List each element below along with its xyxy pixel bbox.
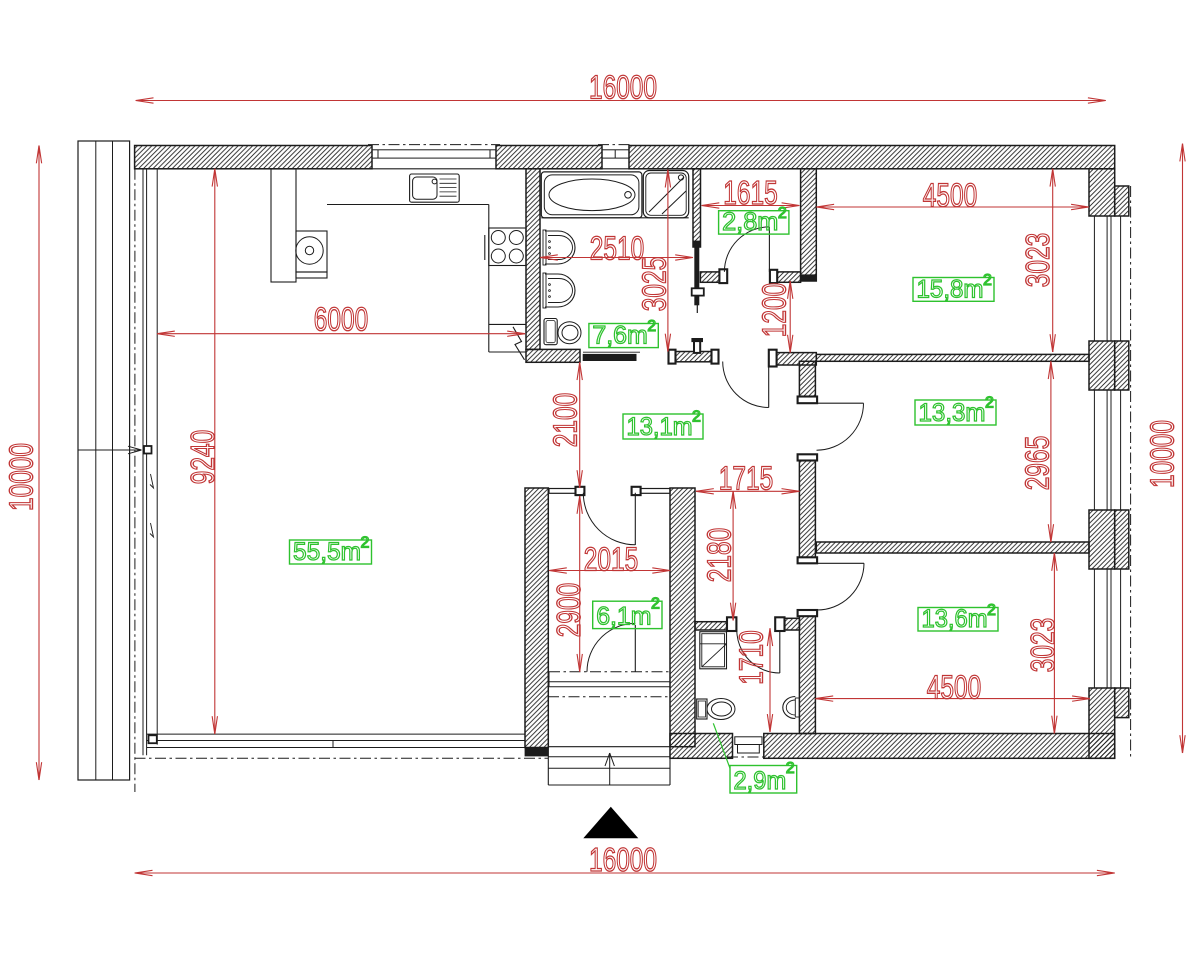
svg-text:16000: 16000 xyxy=(589,69,657,106)
svg-text:2180: 2180 xyxy=(701,528,738,582)
svg-text:55,5m: 55,5m xyxy=(293,538,361,566)
svg-text:2: 2 xyxy=(361,535,370,552)
svg-text:13,6m: 13,6m xyxy=(922,605,988,633)
svg-text:4500: 4500 xyxy=(923,177,977,214)
svg-text:6,1m: 6,1m xyxy=(596,603,651,631)
svg-text:2965: 2965 xyxy=(1019,436,1056,490)
svg-text:2015: 2015 xyxy=(584,541,638,578)
svg-text:6000: 6000 xyxy=(314,301,368,338)
svg-text:1200: 1200 xyxy=(756,283,793,337)
svg-text:10000: 10000 xyxy=(3,443,40,511)
svg-text:3025: 3025 xyxy=(636,257,673,311)
svg-text:2: 2 xyxy=(985,395,994,412)
svg-text:2: 2 xyxy=(983,272,992,289)
svg-text:2900: 2900 xyxy=(550,583,587,637)
svg-text:2,8m: 2,8m xyxy=(722,208,778,236)
svg-text:15,8m: 15,8m xyxy=(917,275,984,303)
svg-text:13,3m: 13,3m xyxy=(919,399,986,427)
svg-text:13,1m: 13,1m xyxy=(627,413,693,441)
svg-text:7,6m: 7,6m xyxy=(592,322,647,350)
svg-text:2100: 2100 xyxy=(547,393,584,447)
svg-text:2: 2 xyxy=(651,596,660,613)
svg-text:3023: 3023 xyxy=(1019,233,1056,287)
svg-text:2,9m: 2,9m xyxy=(734,767,787,795)
svg-text:1710: 1710 xyxy=(732,630,769,684)
svg-text:2: 2 xyxy=(987,602,996,619)
svg-text:2: 2 xyxy=(647,318,656,335)
svg-text:1615: 1615 xyxy=(723,174,777,211)
svg-text:4500: 4500 xyxy=(927,669,981,706)
svg-text:10000: 10000 xyxy=(1144,420,1181,488)
svg-text:9240: 9240 xyxy=(184,430,221,484)
svg-text:16000: 16000 xyxy=(589,841,657,878)
svg-text:1715: 1715 xyxy=(719,460,773,497)
svg-text:2: 2 xyxy=(786,760,795,777)
svg-text:3023: 3023 xyxy=(1024,618,1061,672)
svg-text:2: 2 xyxy=(778,205,787,222)
svg-text:2: 2 xyxy=(692,409,701,426)
